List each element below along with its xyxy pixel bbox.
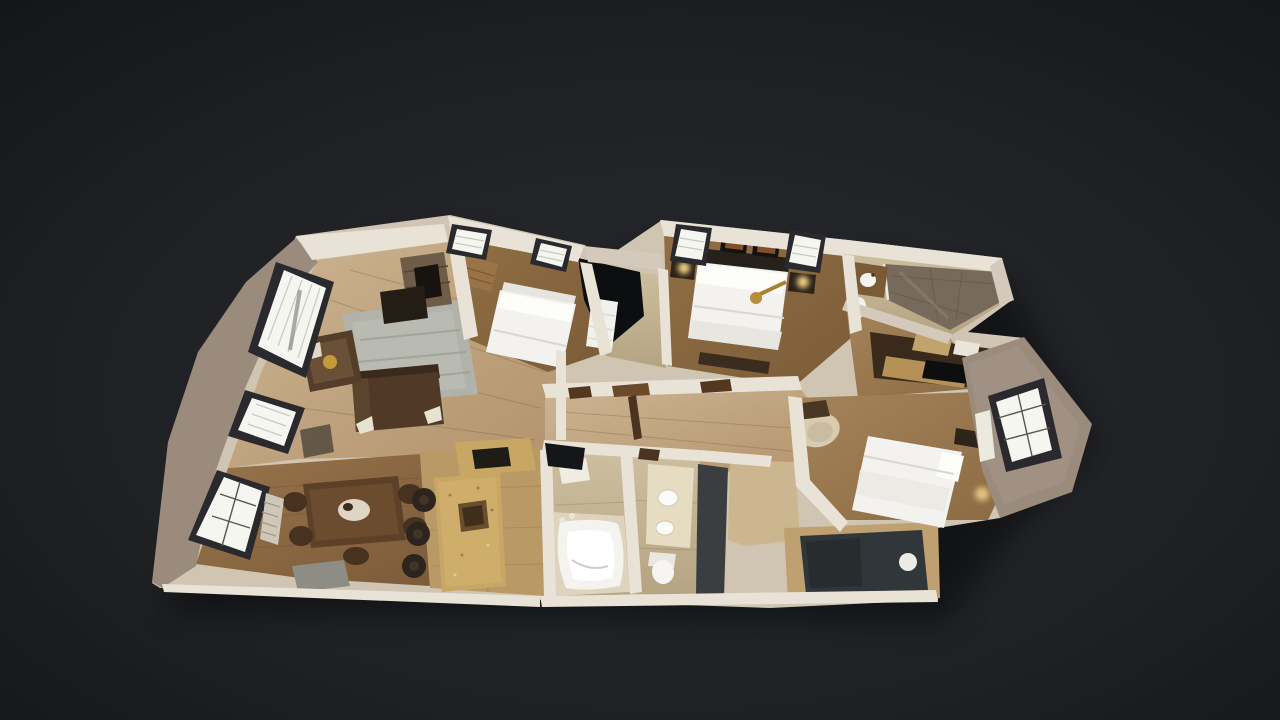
nightstand-right (788, 272, 816, 294)
room-utility[interactable] (784, 522, 940, 602)
kitchen-counter (455, 438, 536, 476)
sectional-sofa (352, 364, 444, 434)
cutaway-shadow-strip (696, 464, 728, 598)
cut-shadow-2 (300, 424, 334, 458)
dining-table (303, 476, 406, 548)
media-console (380, 286, 428, 324)
master-window-left (670, 224, 712, 266)
hall-bath-vanity (646, 464, 694, 548)
water-heater (899, 553, 917, 571)
dollhouse-3d-view[interactable] (0, 0, 1280, 720)
lamp-glow (975, 487, 989, 501)
corner-tub (552, 512, 630, 596)
master-window-right (784, 230, 826, 273)
kitchen-island (434, 472, 506, 592)
tour-viewer-viewport[interactable] (0, 0, 1280, 720)
utility-dark-floor (806, 538, 862, 588)
